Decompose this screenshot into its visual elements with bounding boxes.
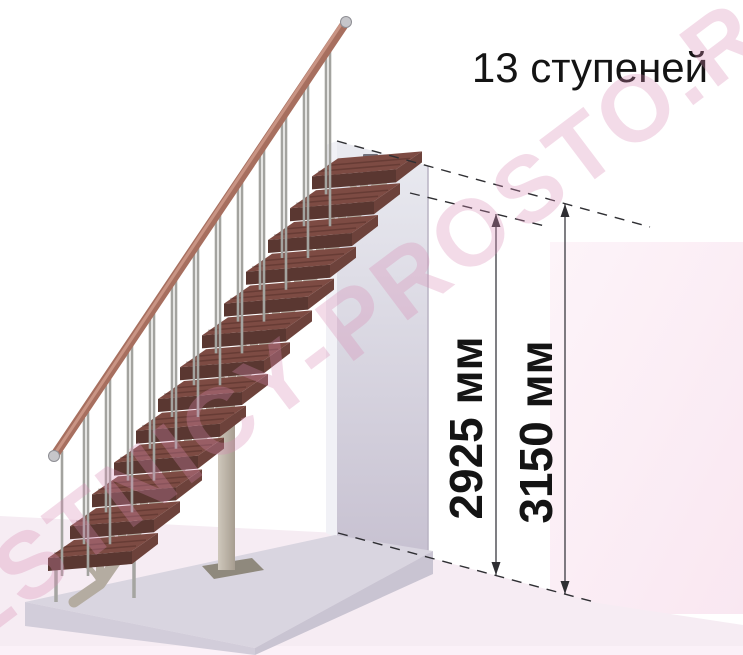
floor-light-strip xyxy=(0,646,743,655)
handrail-end-cap xyxy=(49,451,60,462)
handrail-end-cap xyxy=(341,17,352,28)
staircase-diagram: 2925 мм 3150 мм 13 ступеней LESTNICY-PRO… xyxy=(0,0,743,655)
dimension-label-3150: 3150 мм xyxy=(510,340,562,523)
dimension-label-2925: 2925 мм xyxy=(440,336,492,519)
pink-panel xyxy=(550,242,743,614)
diagram-svg: 2925 мм 3150 мм 13 ступеней LESTNICY-PRO… xyxy=(0,0,743,655)
